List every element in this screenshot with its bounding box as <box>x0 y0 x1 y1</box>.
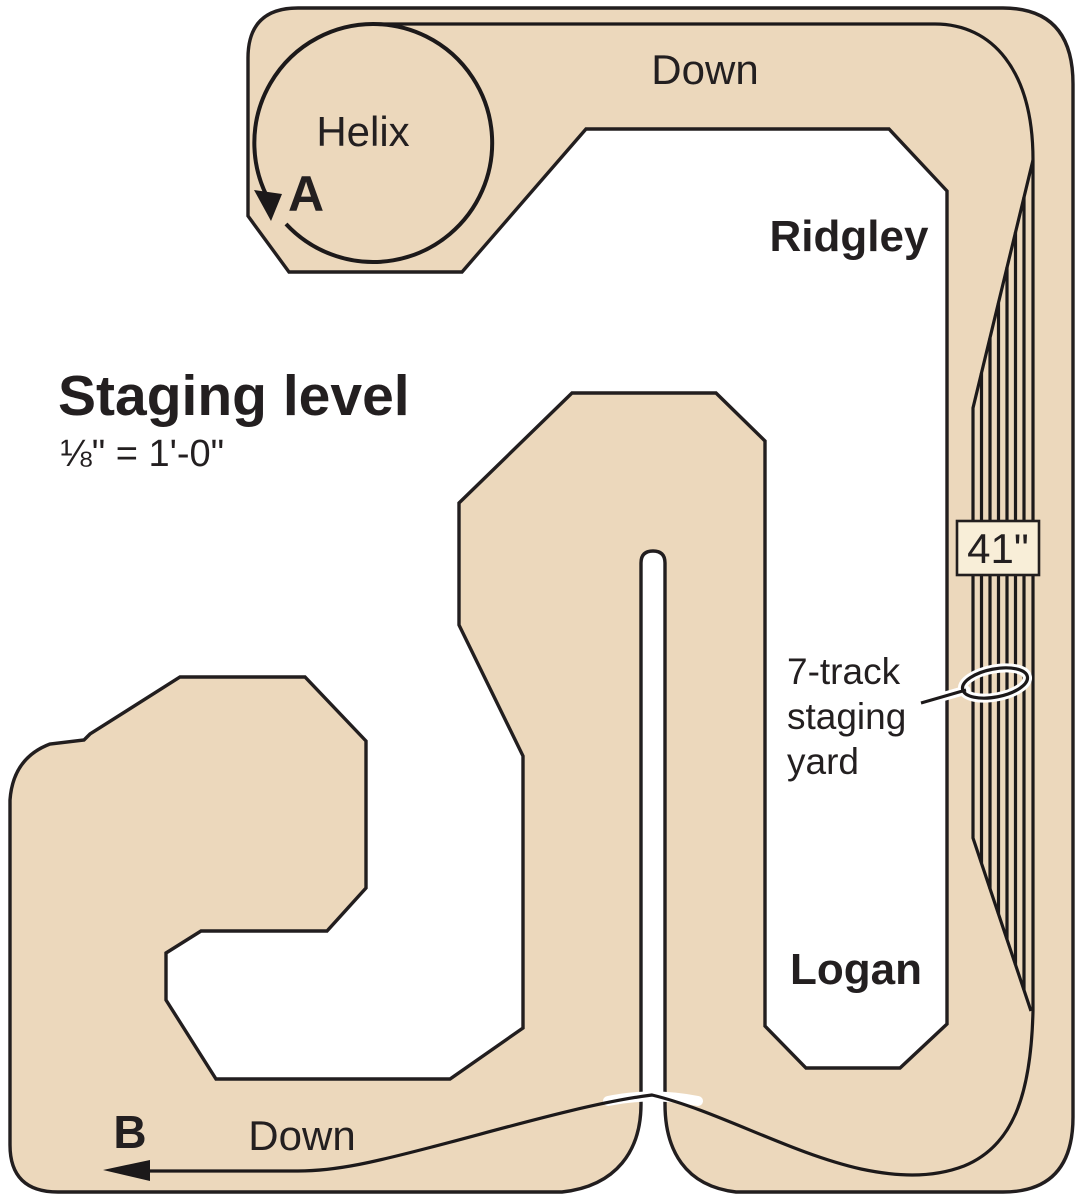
label-down-top: Down <box>651 46 758 93</box>
label-yard-line2: staging <box>787 696 906 737</box>
track-plan-svg: 41" Staging level ⅛" = 1'-0" Down Helix … <box>0 0 1086 1200</box>
label-logan: Logan <box>790 945 922 994</box>
benchwork-shape <box>10 8 1073 1192</box>
label-point-a: A <box>288 166 324 222</box>
track-plan-page: 41" Staging level ⅛" = 1'-0" Down Helix … <box>0 0 1086 1200</box>
label-helix: Helix <box>316 108 409 155</box>
plan-title: Staging level <box>58 364 410 428</box>
height-marker-label: 41" <box>967 525 1029 572</box>
label-down-bottom: Down <box>248 1112 355 1159</box>
label-ridgley: Ridgley <box>770 212 929 261</box>
label-point-b: B <box>113 1106 146 1158</box>
label-yard-line1: 7-track <box>787 651 901 692</box>
label-yard-line3: yard <box>787 741 859 782</box>
plan-scale: ⅛" = 1'-0" <box>60 433 224 475</box>
